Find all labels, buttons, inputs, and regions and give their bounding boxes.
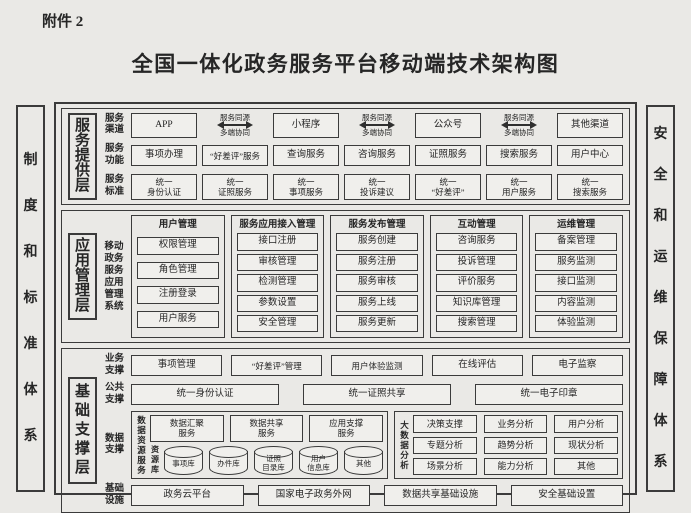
database-cylinder-icon: 事项库 [164,451,203,476]
repo-label: 事项库 [172,457,195,469]
repo-label: 用户 信息库 [307,452,330,472]
channel-box-miniprogram: 小程序 [273,113,339,138]
group-items: 权限管理 角色管理 注册登录 用户服务 [137,231,219,332]
module-box: 审核管理 [237,254,319,271]
data-support-groups: 数据资源服务 数据汇聚 服务 数据共享 服务 应用支撑 服务 资源库 [131,411,623,479]
module-box: 备案管理 [535,233,617,250]
sync-note: 服务同源 多端协同 [202,113,268,138]
app-module-grid: 用户管理 权限管理 角色管理 注册登录 用户服务 服务应用接入管理 接口注册 审… [131,215,623,338]
module-group-user-management: 用户管理 权限管理 角色管理 注册登录 用户服务 [131,215,225,338]
service-channel-row-label: 服务渠道 [103,114,126,137]
app-layer-label: 应用管理层 [75,239,90,314]
sync-note: 服务同源 多端协同 [344,113,410,138]
module-box: 服务注册 [336,254,418,271]
sync-note-bottom: 多端协同 [220,128,250,137]
page-title: 全国一体化政务服务平台移动端技术架构图 [0,48,691,78]
repo-label: 办件库 [217,457,240,469]
service-standard-row: 服务标准 统一 身份认证 统一 证照服务 统一 事项服务 统一 投诉建议 统一 … [103,174,623,200]
module-box: 用户服务 [137,311,219,328]
architecture-diagram: 制度和标准体系 服务提供层 服务渠道 APP 服务同源 [16,102,675,495]
infra-box: 政务云平台 [131,485,244,506]
group-items: 服务创建 服务注册 服务审核 服务上线 服务更新 [336,231,418,332]
public-box: 统一证照共享 [303,384,451,405]
public-box: 统一身份认证 [131,384,279,405]
infrastructure-grid: 政务云平台 国家电子政务外网 数据共享基础设施 安全基础设置 [131,485,623,506]
business-support-row: 业务支撑 事项管理 “好差评”管理 用户体验监测 在线评估 电子监察 [103,353,623,378]
function-box: 事项办理 [131,145,197,166]
module-box: 服务审核 [336,274,418,291]
data-support-row: 数据支撑 数据资源服务 数据汇聚 服务 数据共享 服务 应用支撑 服务 [103,411,623,479]
module-box: 知识库管理 [436,295,518,312]
module-box: 咨询服务 [436,233,518,250]
service-function-row-label: 服务功能 [103,144,126,167]
infra-box: 安全基础设置 [511,485,624,506]
service-function-grid: 事项办理 “好差评”服务 查询服务 咨询服务 证照服务 搜索服务 用户中心 [131,145,623,166]
analysis-box: 场景分析 [413,458,477,475]
module-box: 参数设置 [237,295,319,312]
resource-repo-label: 资源库 [150,445,160,475]
infra-box: 国家电子政务外网 [258,485,371,506]
public-box: 统一电子印章 [475,384,623,405]
data-support-row-label: 数据支撑 [103,434,126,457]
module-group-service-publish: 服务发布管理 服务创建 服务注册 服务审核 服务上线 服务更新 [330,215,424,338]
module-box: 接口监测 [535,274,617,291]
public-support-grid: 统一身份认证 统一证照共享 统一电子印章 [131,384,623,405]
group-title: 服务发布管理 [336,219,418,231]
business-box: 在线评估 [432,355,523,376]
infrastructure-row-label: 基础设施 [103,484,126,507]
module-box: 接口注册 [237,233,319,250]
big-data-grid: 决策支撑 业务分析 用户分析 专题分析 趋势分析 现状分析 场景分析 能力分析 … [413,415,618,475]
bidirectional-arrow-icon [503,124,535,126]
module-box: 检测管理 [237,274,319,291]
left-system-bar: 制度和标准体系 [16,105,45,492]
module-group-service-access: 服务应用接入管理 接口注册 审核管理 检测管理 参数设置 安全管理 [231,215,325,338]
channel-box-official-account: 公众号 [415,113,481,138]
layers-container: 服务提供层 服务渠道 APP 服务同源 多端协同 小程序 [54,102,637,495]
bidirectional-arrow-icon [361,124,393,126]
analysis-box: 趋势分析 [484,437,548,454]
business-box: 用户体验监测 [331,355,422,376]
function-box: 搜索服务 [486,145,552,166]
analysis-box: 能力分析 [484,458,548,475]
repo-label: 其他 [356,457,371,469]
infra-box: 数据共享基础设施 [384,485,497,506]
resource-repo-row: 资源库 事项库 办件库 证照 目录库 用户 信息库 其他 [150,445,383,476]
group-title: 用户管理 [137,219,219,231]
public-support-row-label: 公共支撑 [103,383,126,406]
service-standard-row-label: 服务标准 [103,175,126,198]
standard-box: 统一 搜索服务 [557,174,623,200]
service-channel-row: 服务渠道 APP 服务同源 多端协同 小程序 服务同源 [103,113,623,138]
infrastructure-row: 基础设施 政务云平台 国家电子政务外网 数据共享基础设施 安全基础设置 [103,483,623,508]
business-box: 电子监察 [532,355,623,376]
data-resource-service-group: 数据资源服务 数据汇聚 服务 数据共享 服务 应用支撑 服务 资源库 [131,411,388,479]
service-standard-grid: 统一 身份认证 统一 证照服务 统一 事项服务 统一 投诉建议 统一 “好差评”… [131,174,623,200]
standard-box: 统一 身份认证 [131,174,197,200]
bidirectional-arrow-icon [219,124,251,126]
foundation-layer-label-box: 基础支撑层 [68,377,97,484]
business-support-row-label: 业务支撑 [103,354,126,377]
analysis-box: 现状分析 [554,437,618,454]
standard-box: 统一 事项服务 [273,174,339,200]
channel-box-other: 其他渠道 [557,113,623,138]
data-service-grid: 数据汇聚 服务 数据共享 服务 应用支撑 服务 [150,415,383,441]
foundation-rows: 业务支撑 事项管理 “好差评”管理 用户体验监测 在线评估 电子监察 公共支撑 … [103,353,623,508]
module-box: 内容监测 [535,295,617,312]
database-cylinder-icon: 证照 目录库 [254,451,293,476]
service-layer-label-box: 服务提供层 [68,113,97,200]
right-system-bar: 安全和运维保障体系 [646,105,675,492]
module-group-operations: 运维管理 备案管理 服务监测 接口监测 内容监测 体验监测 [529,215,623,338]
group-title: 服务应用接入管理 [237,219,319,231]
public-support-row: 公共支撑 统一身份认证 统一证照共享 统一电子印章 [103,382,623,407]
service-layer-label: 服务提供层 [75,119,90,194]
service-provision-layer: 服务提供层 服务渠道 APP 服务同源 多端协同 小程序 [61,108,630,205]
data-service-box: 应用支撑 服务 [309,415,383,441]
database-cylinder-icon: 其他 [344,451,383,476]
function-box: 证照服务 [415,145,481,166]
function-box: 咨询服务 [344,145,410,166]
service-function-row: 服务功能 事项办理 “好差评”服务 查询服务 咨询服务 证照服务 搜索服务 用户… [103,144,623,167]
business-box: “好差评”管理 [231,355,322,376]
business-support-grid: 事项管理 “好差评”管理 用户体验监测 在线评估 电子监察 [131,355,623,376]
app-layer-label-box: 应用管理层 [68,233,97,320]
data-resource-content: 数据汇聚 服务 数据共享 服务 应用支撑 服务 资源库 事项库 办件库 [150,415,383,475]
function-box: “好差评”服务 [202,145,268,166]
standard-box: 统一 证照服务 [202,174,268,200]
module-box: 搜索管理 [436,315,518,332]
analysis-box: 用户分析 [554,415,618,432]
mobile-system-label: 移动政务服务应用管理系统 [103,241,125,313]
analysis-box: 其他 [554,458,618,475]
analysis-box: 业务分析 [484,415,548,432]
module-box: 评价服务 [436,274,518,291]
database-cylinder-icon: 办件库 [209,451,248,476]
module-box: 安全管理 [237,315,319,332]
sync-note-bottom: 多端协同 [362,128,392,137]
function-box: 用户中心 [557,145,623,166]
module-box: 服务更新 [336,315,418,332]
standard-box: 统一 投诉建议 [344,174,410,200]
attachment-label: 附件 2 [42,10,83,31]
database-cylinders: 事项库 办件库 证照 目录库 用户 信息库 其他 [164,445,383,476]
group-title: 互动管理 [436,219,518,231]
group-items: 咨询服务 投诉管理 评价服务 知识库管理 搜索管理 [436,231,518,332]
business-box: 事项管理 [131,355,222,376]
document-page: 附件 2 全国一体化政务服务平台移动端技术架构图 制度和标准体系 服务提供层 服… [0,0,691,507]
module-box: 注册登录 [137,286,219,303]
module-box: 服务上线 [336,295,418,312]
module-box: 权限管理 [137,237,219,254]
module-group-interaction: 互动管理 咨询服务 投诉管理 评价服务 知识库管理 搜索管理 [430,215,524,338]
standard-box: 统一 “好差评” [415,174,481,200]
foundation-support-layer: 基础支撑层 业务支撑 事项管理 “好差评”管理 用户体验监测 在线评估 电子监察 [61,348,630,513]
module-box: 服务创建 [336,233,418,250]
right-system-label: 安全和运维保障体系 [654,114,668,483]
left-system-label: 制度和标准体系 [24,138,38,460]
data-service-box: 数据共享 服务 [230,415,304,441]
service-layer-rows: 服务渠道 APP 服务同源 多端协同 小程序 服务同源 [103,113,623,200]
channel-box-app: APP [131,113,197,138]
module-box: 角色管理 [137,262,219,279]
standard-box: 统一 用户服务 [486,174,552,200]
sync-note: 服务同源 多端协同 [486,113,552,138]
analysis-box: 决策支撑 [413,415,477,432]
group-items: 备案管理 服务监测 接口监测 内容监测 体验监测 [535,231,617,332]
big-data-analysis-label: 大数据分析 [399,420,410,470]
function-box: 查询服务 [273,145,339,166]
sync-note-bottom: 多端协同 [504,128,534,137]
database-cylinder-icon: 用户 信息库 [299,451,338,476]
module-box: 体验监测 [535,315,617,332]
repo-label: 证照 目录库 [262,452,285,472]
service-channel-grid: APP 服务同源 多端协同 小程序 服务同源 多端协同 [131,113,623,138]
group-items: 接口注册 审核管理 检测管理 参数设置 安全管理 [237,231,319,332]
data-resource-service-label: 数据资源服务 [136,415,147,475]
group-title: 运维管理 [535,219,617,231]
analysis-box: 专题分析 [413,437,477,454]
module-box: 服务监测 [535,254,617,271]
big-data-analysis-group: 大数据分析 决策支撑 业务分析 用户分析 专题分析 趋势分析 现状分析 场景分析 [394,411,623,479]
module-box: 投诉管理 [436,254,518,271]
foundation-layer-label: 基础支撑层 [75,383,90,478]
data-service-box: 数据汇聚 服务 [150,415,224,441]
application-management-layer: 应用管理层 移动政务服务应用管理系统 用户管理 权限管理 角色管理 注册登录 用… [61,210,630,343]
